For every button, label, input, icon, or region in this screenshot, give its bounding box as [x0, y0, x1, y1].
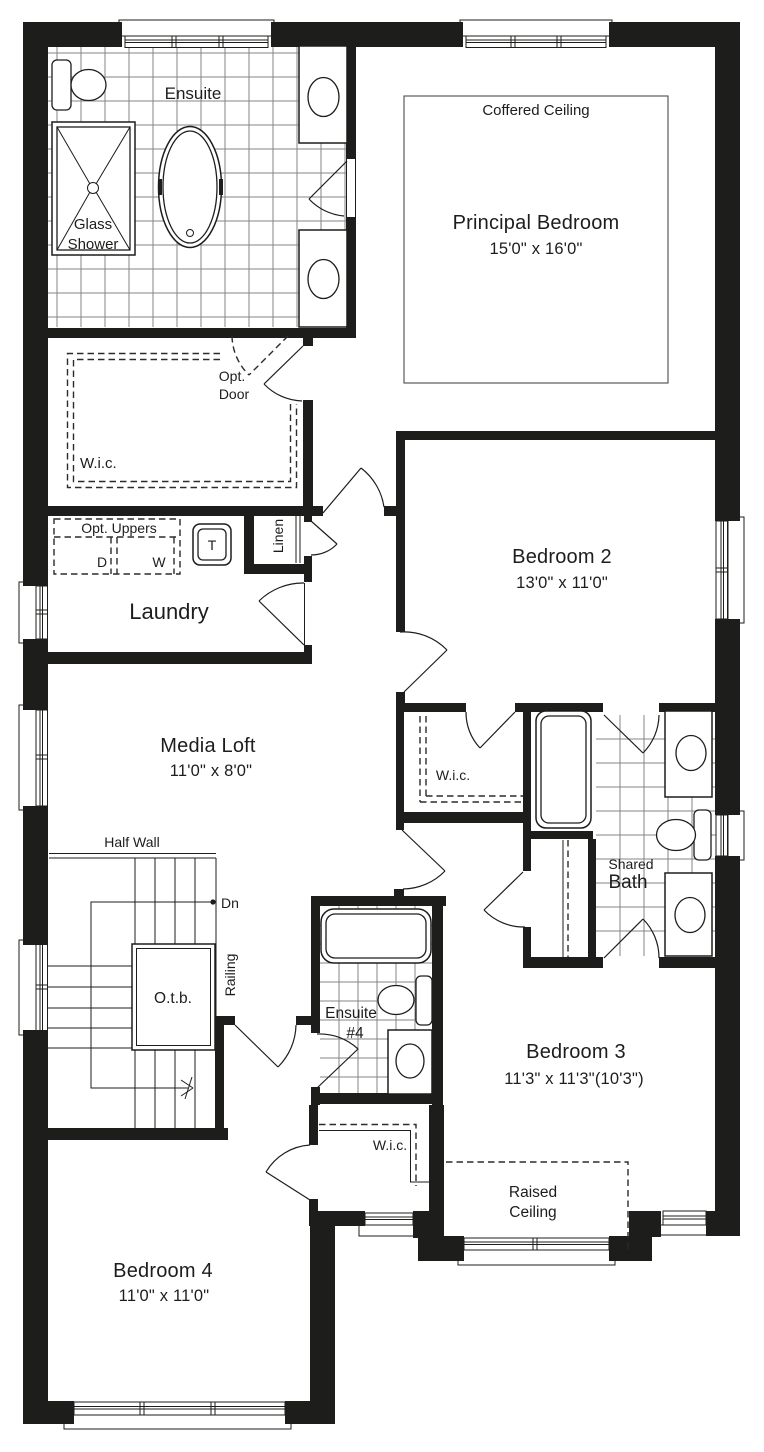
svg-text:T: T: [208, 537, 217, 553]
svg-text:Dn: Dn: [221, 895, 239, 911]
svg-text:Media Loft: Media Loft: [160, 735, 256, 757]
svg-text:Ensuite: Ensuite: [325, 1005, 377, 1022]
svg-text:Laundry: Laundry: [129, 599, 209, 624]
svg-text:Half Wall: Half Wall: [104, 834, 160, 850]
svg-text:Shower: Shower: [68, 236, 119, 253]
svg-text:O.t.b.: O.t.b.: [154, 990, 192, 1007]
svg-text:W: W: [152, 554, 166, 570]
svg-text:13'0" x 11'0": 13'0" x 11'0": [516, 574, 608, 592]
svg-text:Raised: Raised: [509, 1184, 557, 1201]
svg-text:Opt.: Opt.: [219, 368, 245, 384]
svg-text:11'3" x 11'3"(10'3"): 11'3" x 11'3"(10'3"): [504, 1070, 644, 1088]
svg-text:Bath: Bath: [608, 872, 647, 893]
svg-text:Railing: Railing: [222, 954, 238, 997]
svg-text:Ensuite: Ensuite: [165, 84, 222, 103]
svg-text:Principal Bedroom: Principal Bedroom: [453, 212, 620, 234]
svg-text:Coffered Ceiling: Coffered Ceiling: [482, 102, 589, 119]
svg-text:Shared: Shared: [608, 856, 653, 872]
svg-text:Glass: Glass: [74, 216, 112, 233]
svg-text:11'0" x 11'0": 11'0" x 11'0": [119, 1287, 210, 1305]
svg-text:Ceiling: Ceiling: [509, 1204, 556, 1221]
svg-text:#4: #4: [346, 1025, 364, 1042]
svg-text:Bedroom 4: Bedroom 4: [113, 1260, 213, 1282]
svg-text:D: D: [97, 554, 107, 570]
svg-text:15'0" x 16'0": 15'0" x 16'0": [489, 240, 582, 258]
svg-text:W.i.c.: W.i.c.: [436, 767, 470, 783]
svg-text:W.i.c.: W.i.c.: [373, 1137, 407, 1153]
svg-text:Linen: Linen: [270, 519, 286, 553]
svg-text:W.i.c.: W.i.c.: [80, 455, 117, 472]
svg-text:11'0" x 8'0": 11'0" x 8'0": [170, 762, 253, 780]
svg-text:Door: Door: [219, 386, 250, 402]
svg-text:Bedroom 2: Bedroom 2: [512, 546, 612, 568]
svg-text:Opt. Uppers: Opt. Uppers: [81, 520, 156, 536]
svg-text:Bedroom 3: Bedroom 3: [526, 1041, 626, 1063]
